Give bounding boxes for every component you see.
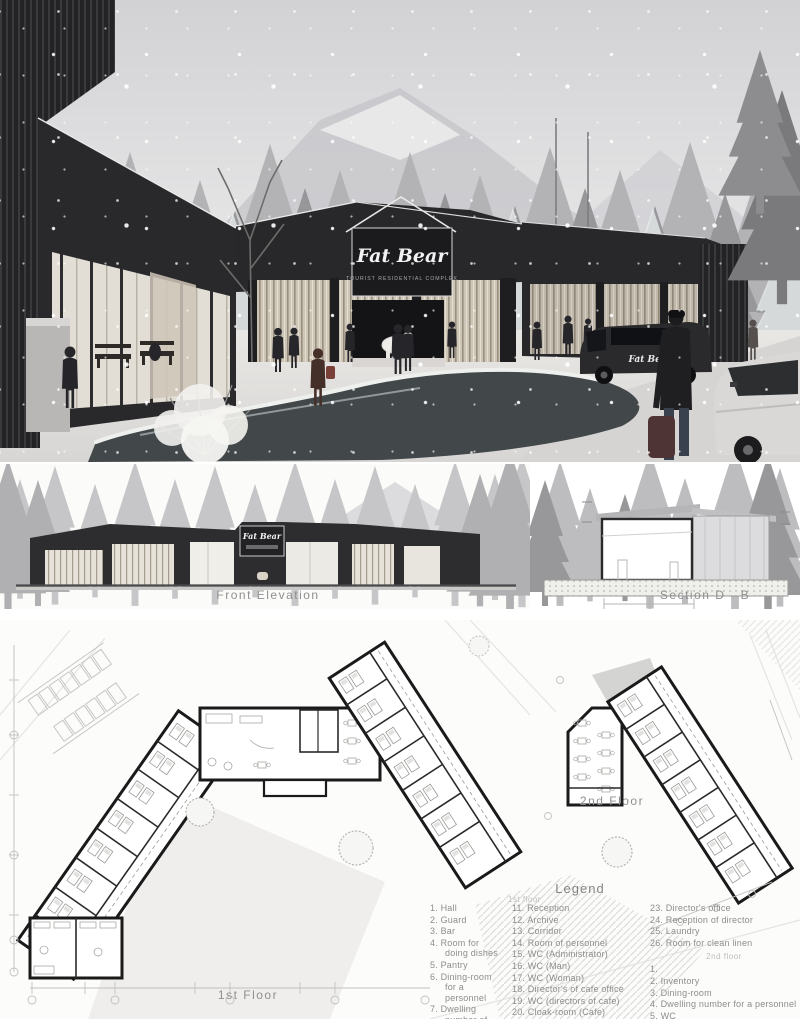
legend-item: 6. Dining-room for a personnel [430,972,504,1004]
legend-item: 17. WC (Woman) [512,973,642,984]
legend-column-3b: 1.2. Inventory3. Dining-room4. Dwelling … [650,964,798,1019]
front-elevation-label: Front Elevation [168,588,368,602]
legend-item: 20. Cloak-room (Cafe) [512,1007,642,1018]
legend-column-2: 11. Reception12. Archive13. Corridor14. … [512,903,642,1019]
elevation-sign: Fat Bear [240,526,284,556]
legend-item: 12. Archive [512,915,642,926]
vestibule [264,780,326,796]
section-label: Section D - B [620,588,790,602]
legend-item: 26. Room for clean linen [650,938,798,949]
legend-item: 25. Laundry [650,926,798,937]
sign-subtitle: TOURIST RESIDENTIAL COMPLEX [346,276,458,282]
legend-item: 14. Room of personnel [512,938,642,949]
legend-item: 2. Guard [430,915,504,926]
legend-item: 3. Dining-room [650,988,798,999]
legend: Legend 1st floor 1. Hall2. Guard3. Bar4.… [430,881,798,1019]
legend-item: 3. Bar [430,926,504,937]
legend-item: 16. WC (Man) [512,961,642,972]
legend-item: 5. WC [650,1011,798,1019]
legend-item: 18. Director's of cafe office [512,984,642,995]
legend-item: 1. Hall [430,903,504,914]
legend-floor1-header: 1st floor [508,895,541,904]
legend-item: 5. Pantry [430,960,504,971]
floor2-label: 2nd Floor [552,794,672,808]
tree [339,831,373,865]
legend-item: 19. WC (directors of cafe) [512,996,642,1007]
legend-column-1: 1. Hall2. Guard3. Bar4. Room for doing d… [430,903,504,1019]
render-view: Fat Bear TOURIST RESIDENTIAL COMPLEX [0,0,800,462]
tree [602,837,632,867]
legend-title: Legend [396,881,764,896]
travel-bag [648,416,675,458]
seated-person [149,343,161,361]
legend-item: 4. Dwelling number for a personnel [650,999,798,1010]
legend-item: 23. Director's office [650,903,798,914]
suv-mirror [730,382,737,387]
elevation-bear [257,572,268,580]
presentation-board: Fat Bear TOURIST RESIDENTIAL COMPLEX [0,0,800,1019]
floor1-label: 1st Floor [178,988,318,1002]
elevation-building: Fat Bear [30,522,480,585]
elevation-sign-title: Fat Bear [242,531,282,541]
legend-item: 1. [650,964,798,975]
legend-item: 24. Reception of director [650,915,798,926]
legend-item: 4. Room for doing dishes [430,938,504,959]
tree [186,798,214,826]
legend-column-3a: 23. Director's office24. Reception of di… [650,903,798,948]
legend-floor2-header: 2nd floor [650,952,798,961]
legend-item: 11. Reception [512,903,642,914]
legend-item: 2. Inventory [650,976,798,987]
legend-item: 15. WC (Administrator) [512,949,642,960]
sign-title: Fat Bear [356,245,450,267]
legend-column-3: 23. Director's office24. Reception of di… [650,903,798,1019]
legend-item: 13. Corridor [512,926,642,937]
legend-item: 7. Dwelling number of administrator [430,1004,504,1019]
